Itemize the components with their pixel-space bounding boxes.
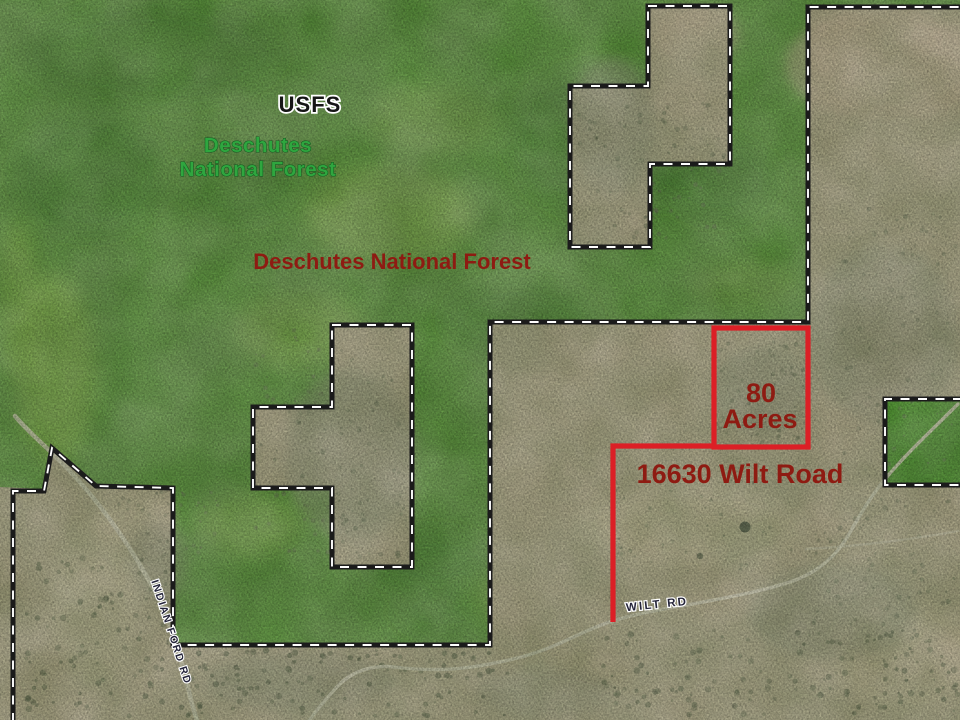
address-label: 16630 Wilt Road	[637, 459, 844, 489]
terrain-grain	[0, 0, 960, 720]
forest-label-red: Deschutes National Forest	[253, 249, 531, 274]
forest-label-green-line1: Deschutes	[204, 134, 312, 157]
aerial-property-map: USFS Deschutes National Forest Deschutes…	[0, 0, 960, 720]
aerial-map-image: USFS Deschutes National Forest Deschutes…	[0, 0, 960, 720]
forest-label-green-line2: National Forest	[180, 158, 337, 181]
acreage-unit-label: Acres	[722, 404, 797, 434]
usfs-label: USFS	[279, 92, 342, 117]
